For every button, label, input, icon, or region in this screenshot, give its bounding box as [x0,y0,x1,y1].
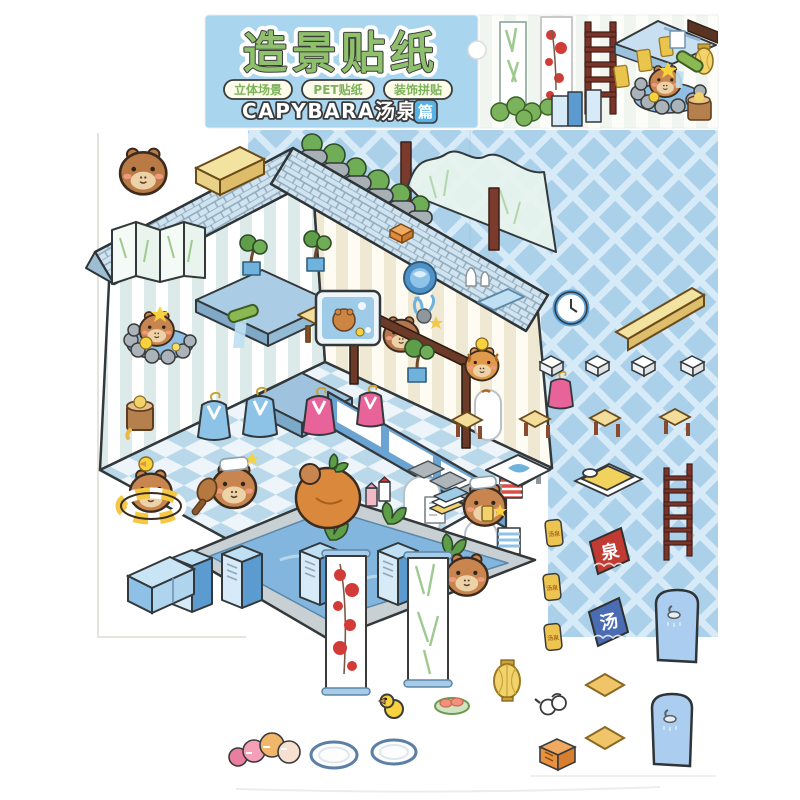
oval-mat [372,740,416,764]
paper-lantern [494,660,520,701]
header-card: 造景贴纸 造景贴纸 立体场景 PET贴纸 装饰拼贴 CAPYBARA汤泉 篇 [205,15,486,128]
feature-badges: 立体场景 PET贴纸 装饰拼贴 [224,80,452,99]
floor-tile [586,727,624,749]
plum-banner [322,550,370,695]
wall-tv-capybara [316,291,380,345]
white-teapot [535,694,566,715]
gold-plaque: 汤泉 [545,519,564,547]
hang-hole [468,41,486,59]
product-photo: 造景贴纸 造景贴纸 立体场景 PET贴纸 装饰拼贴 CAPYBARA汤泉 篇 [0,0,800,800]
plaque-text: 汤泉 [546,583,559,592]
badge-pet-sticker: PET贴纸 [313,82,362,97]
back-scene-card [478,15,718,128]
product-title: 造景贴纸 [243,28,439,79]
oval-mat [311,742,357,768]
sitting-capybara [446,554,488,595]
series-title: CAPYBARA汤泉 [242,99,418,123]
badge-3d-scene: 立体场景 [234,82,282,97]
shower-door [652,694,692,766]
bamboo-banner [404,552,452,687]
badge-deco-collage: 装饰拼贴 [393,82,442,97]
rubber-duck [379,695,403,719]
plaque-text: 汤泉 [547,633,560,642]
scene-bamboo-banner [496,22,530,109]
sushi-plate [435,698,469,714]
sticker-sheet-art: 造景贴纸 造景贴纸 立体场景 PET贴纸 装饰拼贴 CAPYBARA汤泉 篇 [0,0,800,800]
plaque-text: 汤泉 [548,529,561,538]
wall-clock [555,292,587,324]
scene-lockers [552,90,601,126]
capybara-sticker [120,149,166,195]
macarons [229,733,300,766]
gold-plaque: 汤泉 [544,623,563,651]
orange-crate [540,739,575,770]
gold-plaque: 汤泉 [543,573,562,601]
floor-tile [586,674,624,696]
folding-screen [112,222,205,284]
shower-door [656,590,698,662]
wall-basin [404,262,436,294]
locker [222,546,262,608]
series-suffix-badge: 篇 [418,103,433,121]
